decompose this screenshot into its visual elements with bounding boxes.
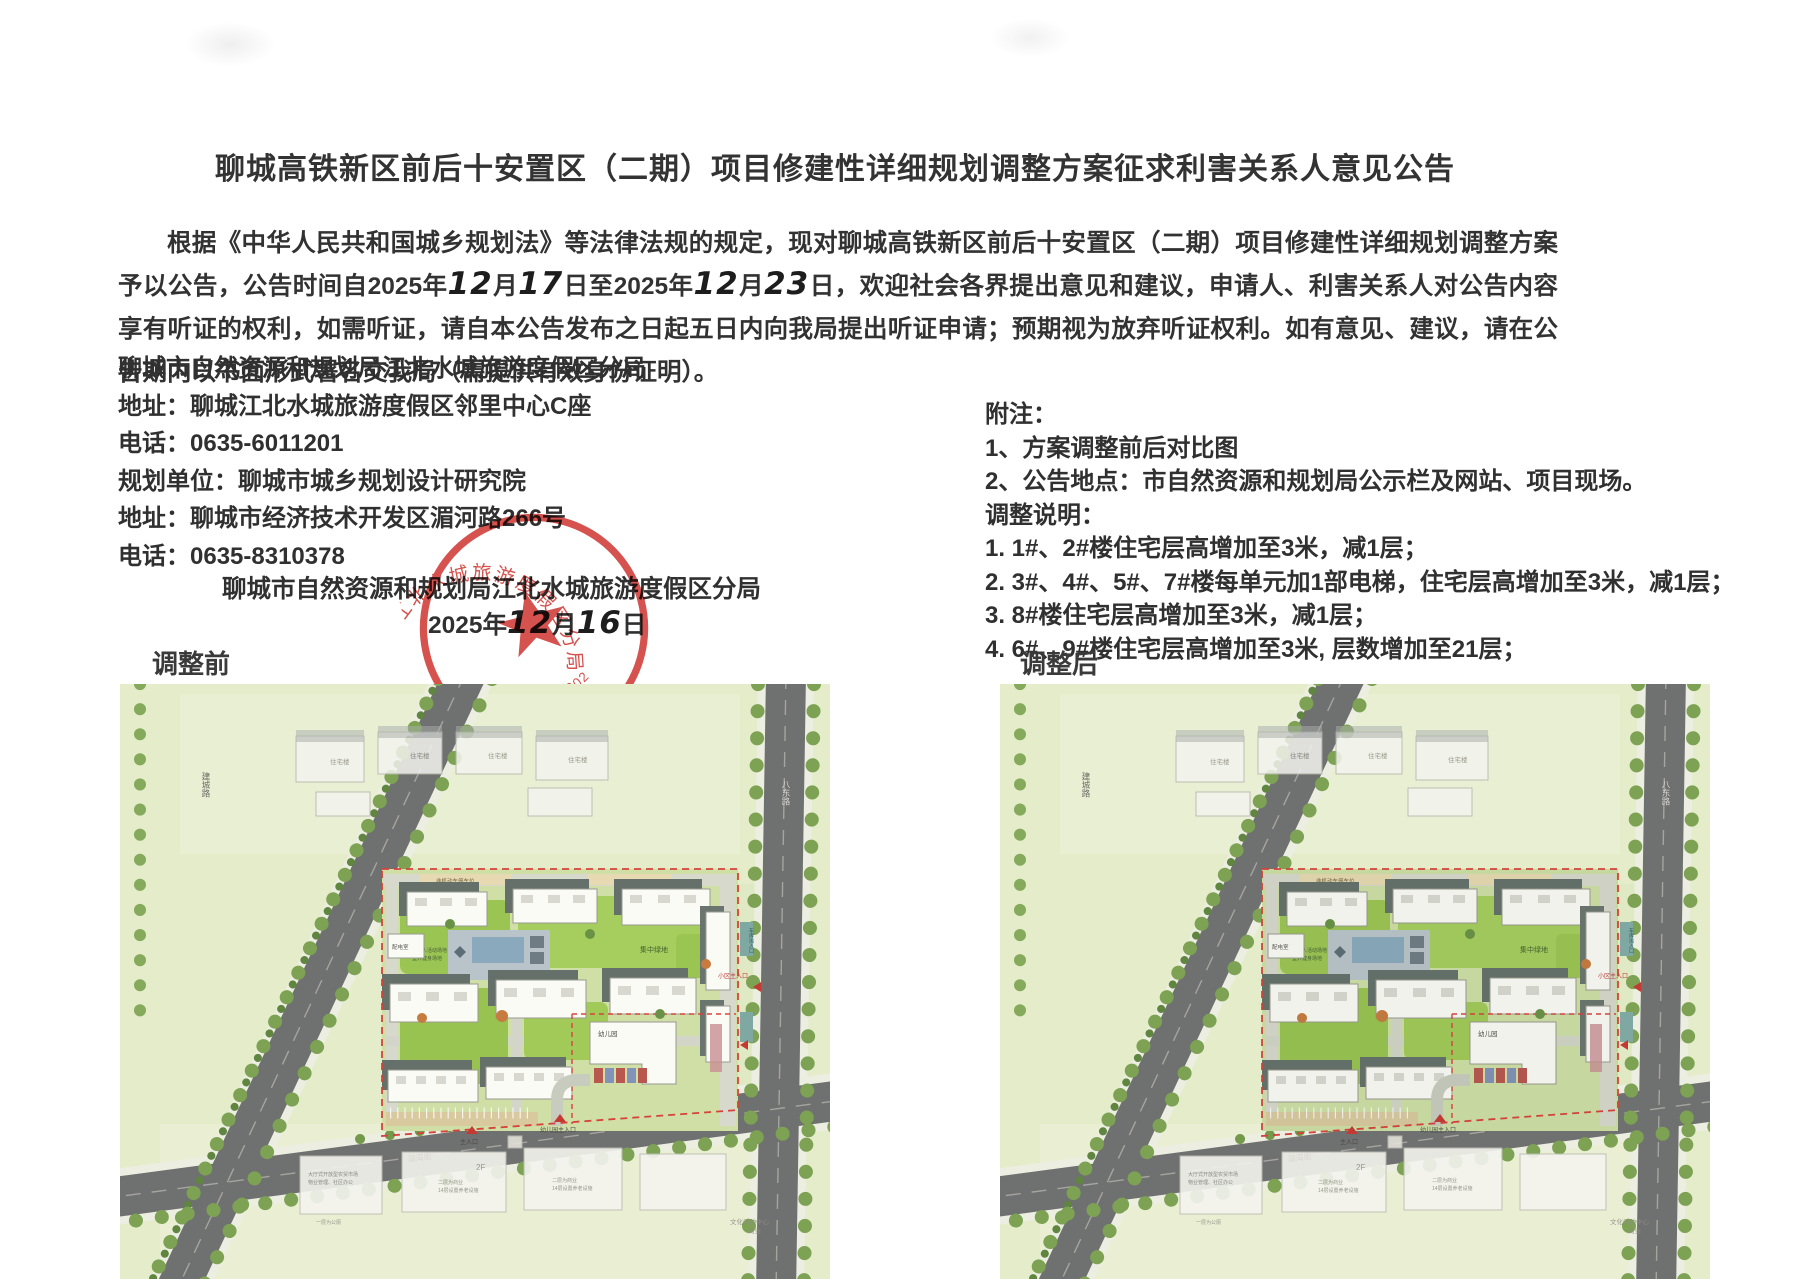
adjust-item: 2. 3#、4#、5#、7#楼每单元加1部电梯，住宅层高增加至3米，减1层； <box>985 566 1735 600</box>
notes-heading: 附注： <box>985 398 1735 432</box>
after-shadow-overlay <box>1262 869 1618 1131</box>
before-plan <box>120 684 830 1279</box>
handwritten-day: 23 <box>764 266 809 302</box>
bureau-phone: 电话：0635-6011201 <box>118 425 646 463</box>
para-text: 月 <box>739 273 764 300</box>
before-map-label: 调整前 <box>152 644 230 681</box>
notes-item: 1、方案调整前后对比图 <box>985 432 1735 466</box>
site-plan-after-map <box>1000 684 1710 1279</box>
page-title: 聊城高铁新区前后十安置区（二期）项目修建性详细规划调整方案征求利害关系人意见公告 <box>110 144 1560 188</box>
para-text: 月 <box>493 273 518 300</box>
handwritten-month: 12 <box>694 266 739 302</box>
announcement-page: { "title": "聊城高铁新区前后十安置区（二期）项目修建性详细规划调整方… <box>0 0 1809 1279</box>
adjust-item: 1. 1#、2#楼住宅层高增加至3米，减1层； <box>985 532 1735 566</box>
adjust-item: 3. 8#楼住宅层高增加至3米，减1层； <box>985 599 1735 633</box>
adjust-heading: 调整说明： <box>985 499 1735 533</box>
site-plan-before-map: 住宅楼 住宅楼 住宅楼 住宅楼 <box>120 684 830 1279</box>
scan-artifact <box>185 22 275 67</box>
para-text: 日至2025年 <box>563 273 693 300</box>
scan-artifact <box>990 18 1070 58</box>
handwritten-month: 12 <box>448 266 493 302</box>
handwritten-day: 17 <box>518 266 563 302</box>
after-map-label: 调整后 <box>1020 644 1098 681</box>
notes-block: 附注： 1、方案调整前后对比图 2、公告地点：市自然资源和规划局公示栏及网站、项… <box>985 398 1735 666</box>
notes-item: 2、公告地点：市自然资源和规划局公示栏及网站、项目现场。 <box>985 465 1735 499</box>
bureau-address: 地址：聊城江北水城旅游度假区邻里中心C座 <box>118 388 646 426</box>
bureau-name: 聊城市自然资源和规划局江北水城旅游度假区分局 <box>118 350 646 388</box>
